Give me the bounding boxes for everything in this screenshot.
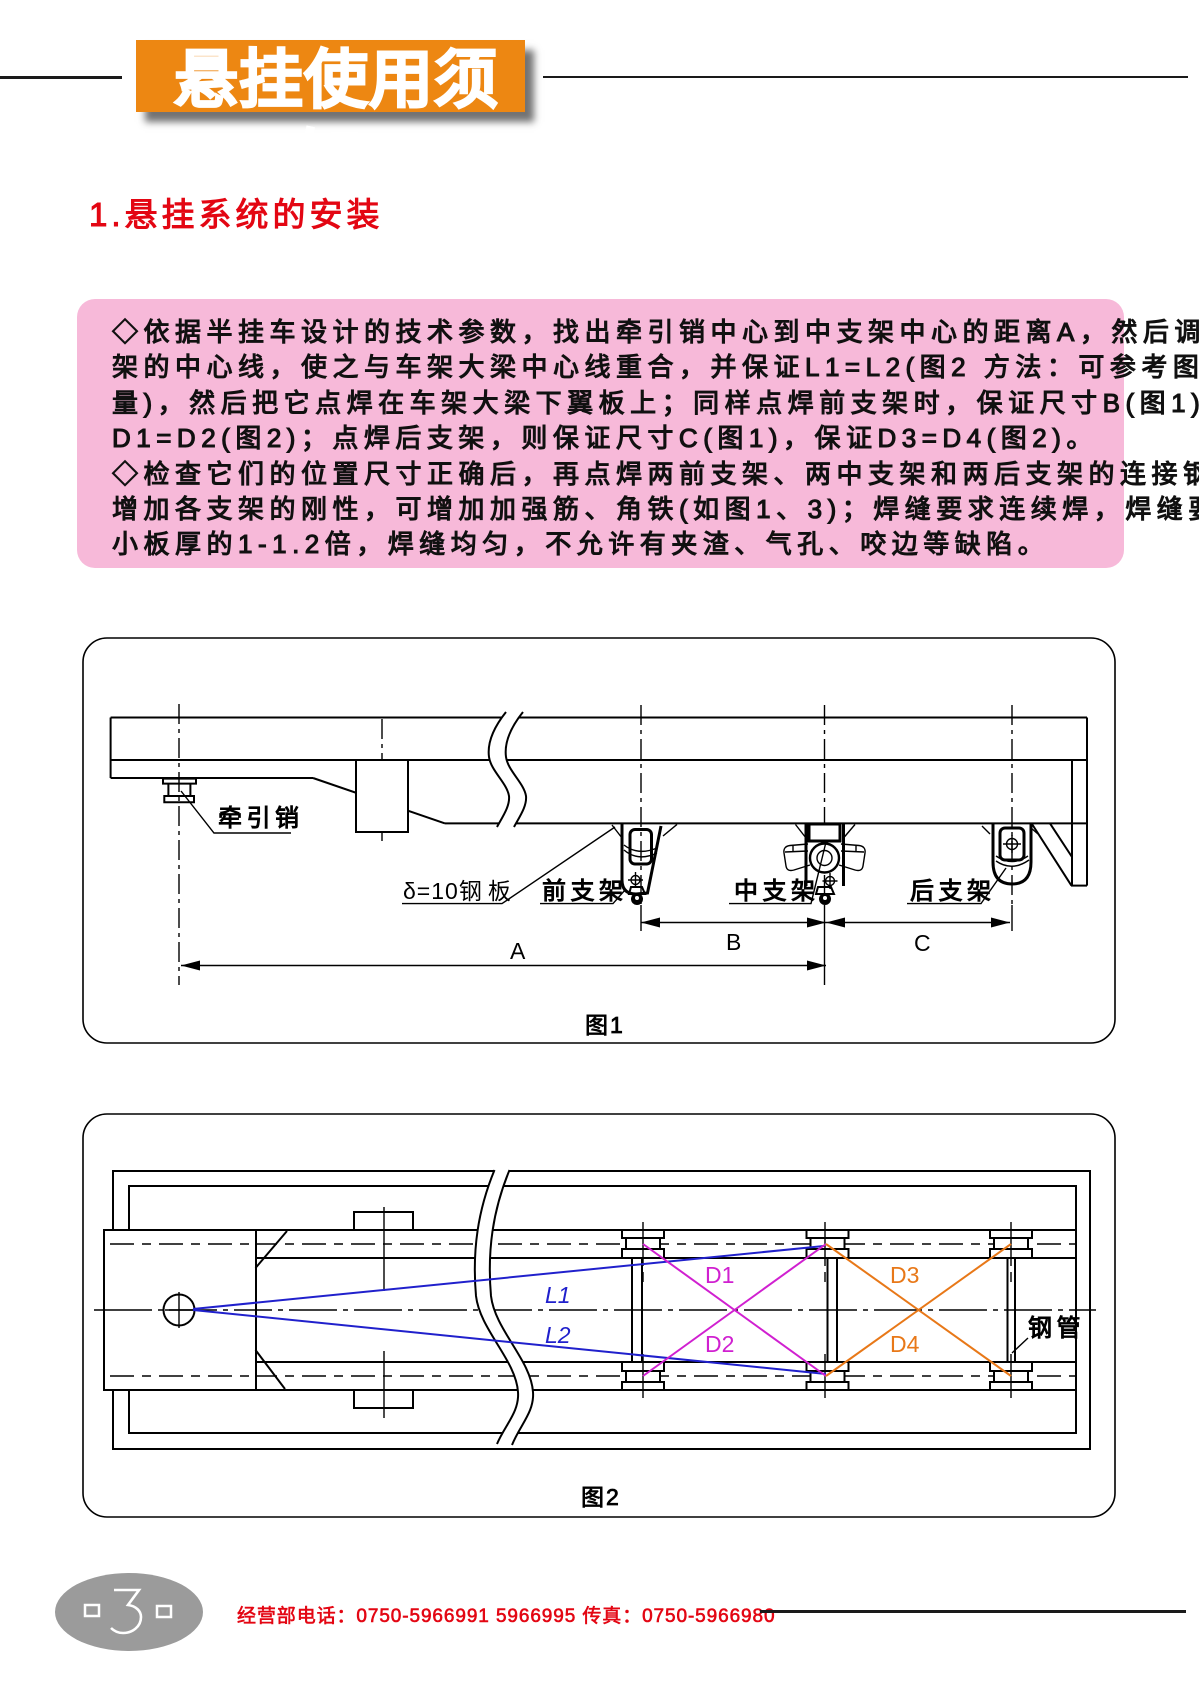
svg-text:钢管: 钢管 [1028,1315,1085,1342]
svg-text:D3: D3 [890,1262,919,1288]
svg-text:D2: D2 [705,1331,734,1357]
svg-text:前支架: 前支架 [542,878,628,905]
svg-text:后支架: 后支架 [910,878,996,905]
svg-text:A: A [510,938,526,964]
svg-text:B: B [726,929,741,955]
svg-text:C: C [914,930,931,956]
svg-text:δ=10钢板: δ=10钢板 [403,878,517,904]
svg-text:中支架: 中支架 [734,878,820,905]
svg-text:图1: 图1 [585,1012,625,1038]
svg-text:D1: D1 [705,1262,734,1288]
svg-text:图2: 图2 [581,1484,621,1510]
svg-text:牵引销: 牵引销 [218,805,304,832]
svg-text:L2: L2 [545,1322,571,1348]
svg-text:D4: D4 [890,1331,920,1357]
svg-text:L1: L1 [545,1282,571,1308]
